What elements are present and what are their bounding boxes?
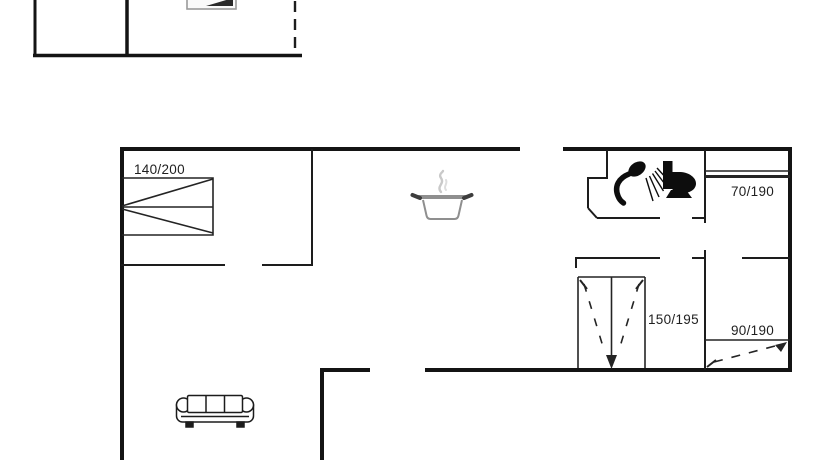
bed-icon (578, 277, 645, 369)
bed-size-label: 140/200 (134, 162, 185, 177)
floor-plan-drawing (0, 0, 834, 460)
sofa-icon (177, 396, 254, 428)
floor-plan: 140/200 70/190 150/195 90/190 (0, 0, 834, 460)
bed-size-label: 90/190 (731, 323, 774, 338)
bed-icon (122, 178, 213, 235)
bed-icon (705, 340, 790, 367)
bed-size-label: 150/195 (648, 312, 699, 327)
cropped-appliance-icon (187, 0, 236, 9)
shower-icon (617, 158, 668, 203)
cooking-pot-icon (413, 171, 472, 219)
outer-walls (33, 0, 792, 460)
bed-icon (705, 171, 790, 177)
bed-size-label: 70/190 (731, 184, 774, 199)
toilet-icon (663, 161, 696, 198)
